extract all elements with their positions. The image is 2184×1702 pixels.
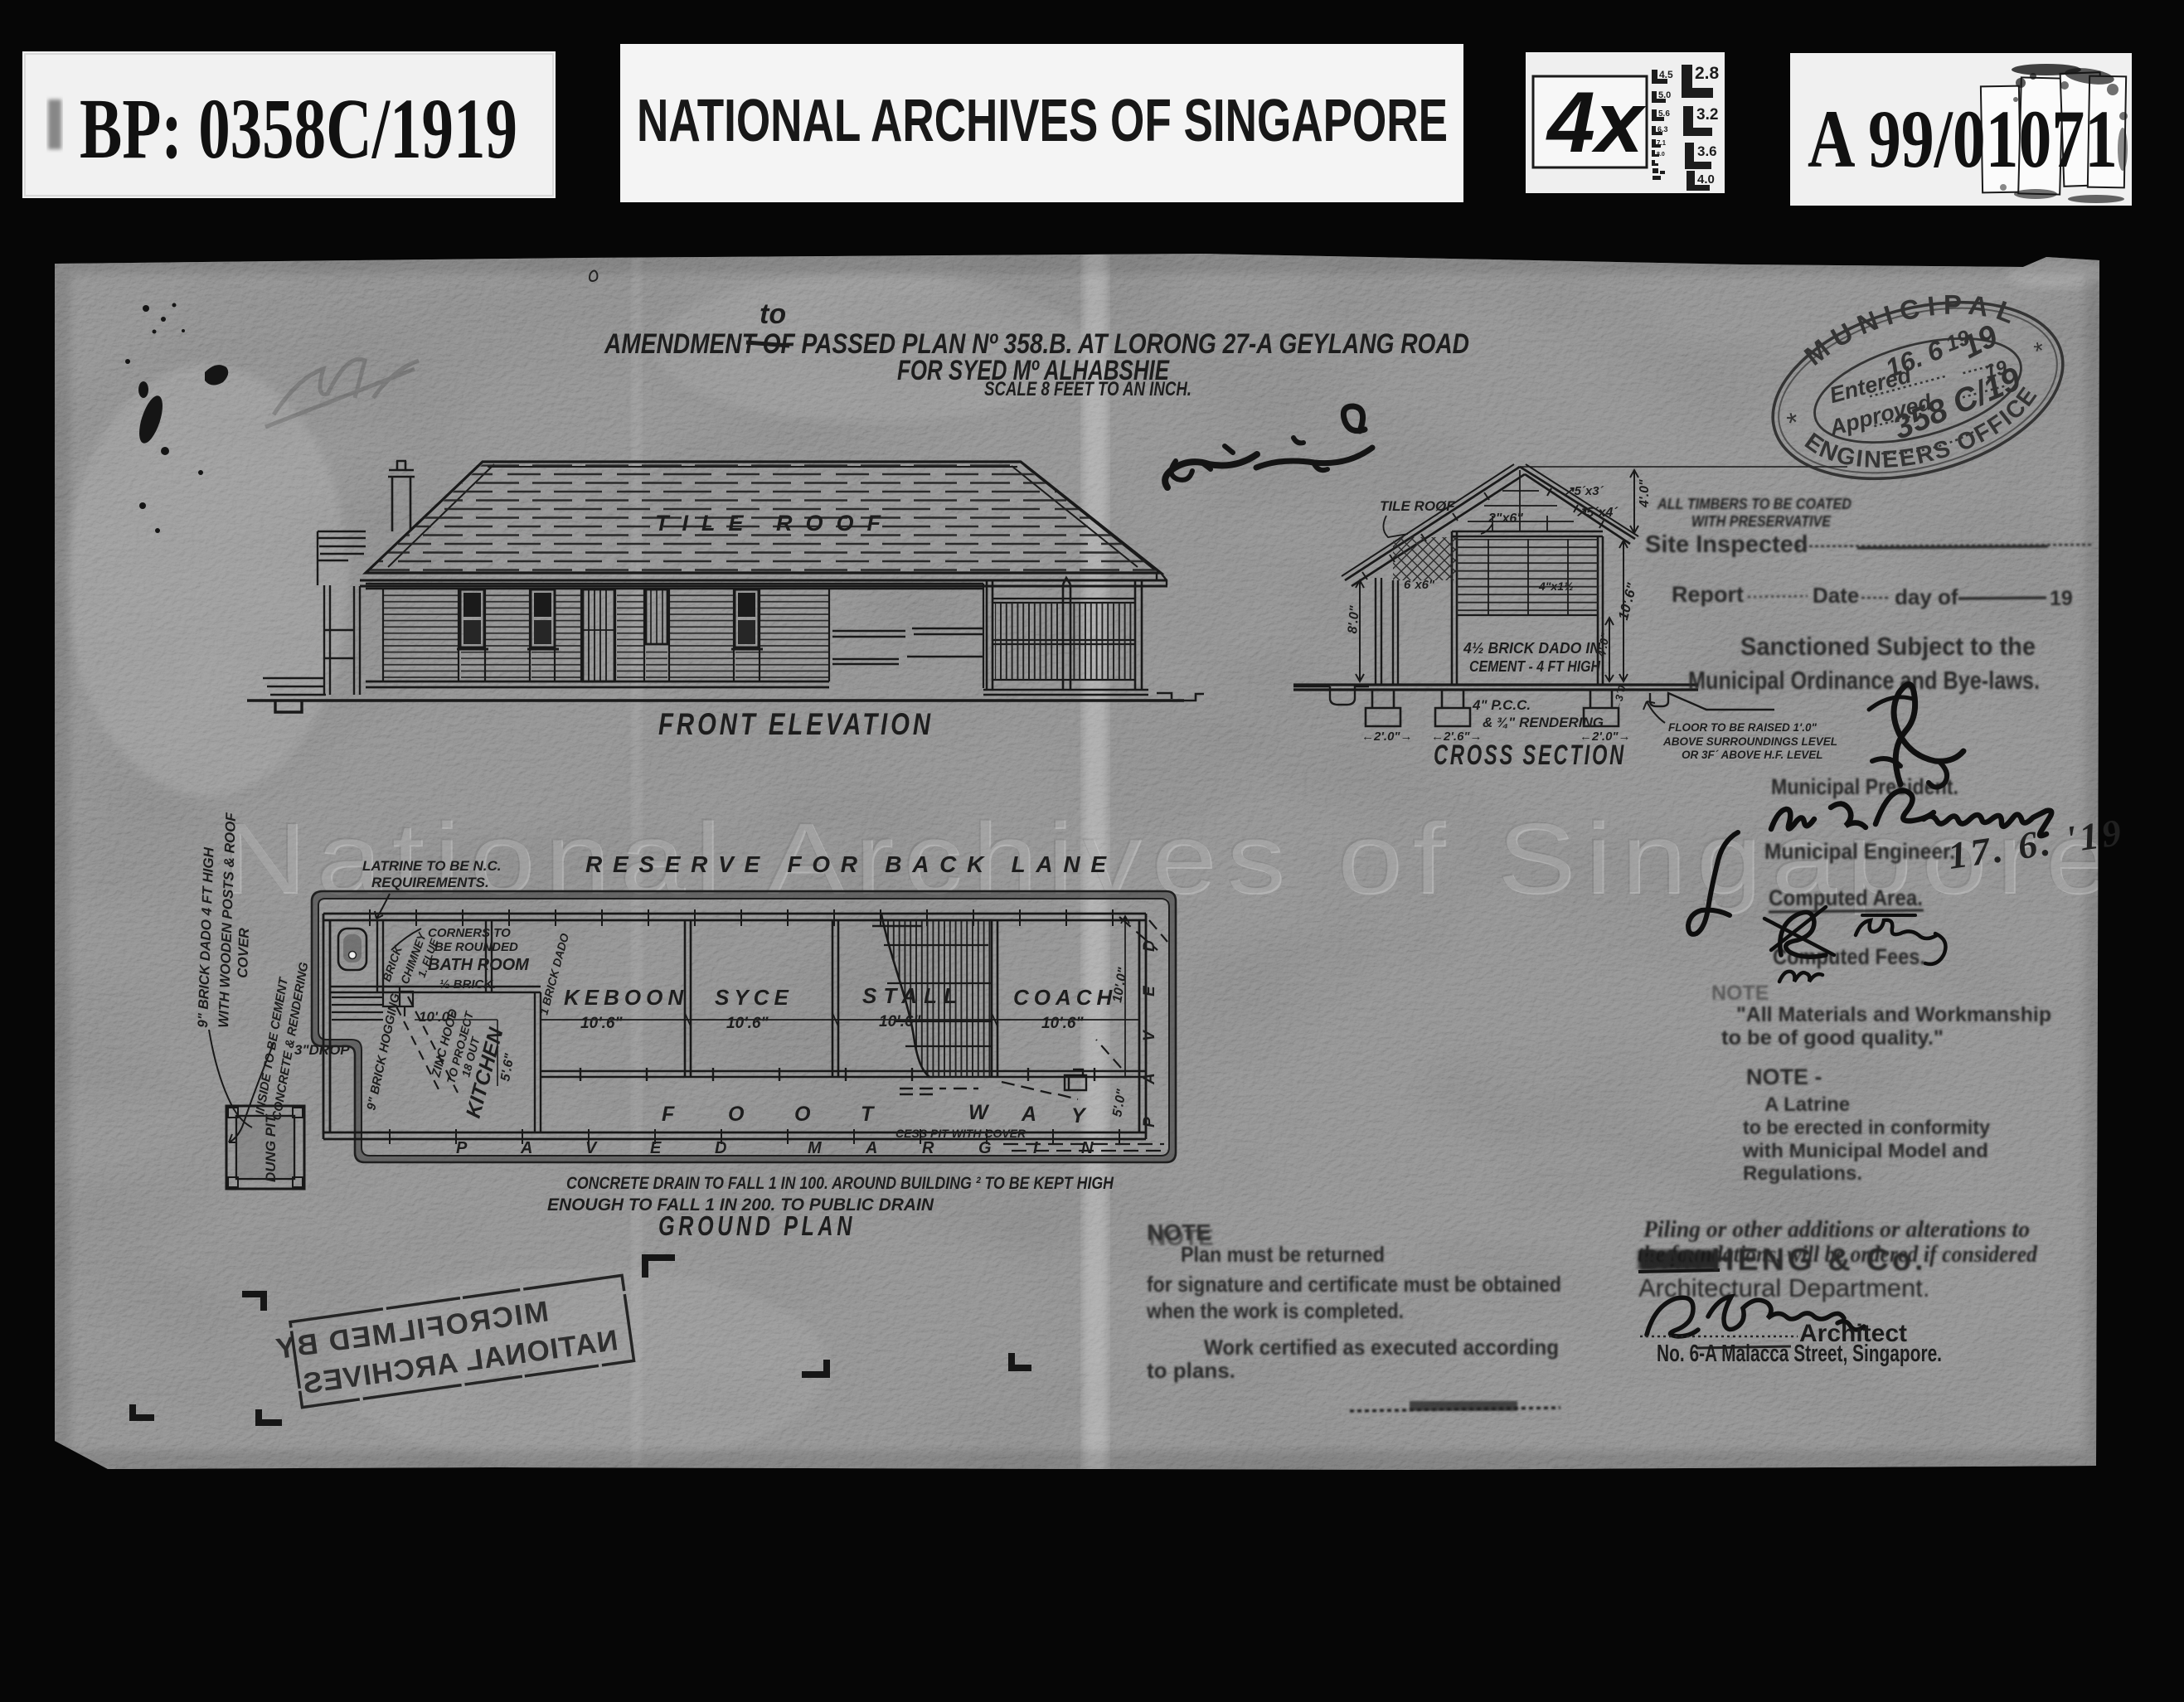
- svg-text:"All Materials and Workmanship: "All Materials and Workmanship: [1736, 1003, 2051, 1026]
- svg-text:A: A: [865, 1139, 877, 1157]
- svg-text:A: A: [520, 1139, 532, 1157]
- svg-text:NOTE -: NOTE -: [1746, 1064, 1822, 1089]
- svg-text:GROUND PLAN: GROUND PLAN: [658, 1210, 856, 1241]
- svg-text:3.6: 3.6: [1697, 143, 1717, 159]
- svg-text:Date: Date: [1813, 583, 1859, 608]
- svg-text:6.3: 6.3: [1657, 125, 1668, 133]
- svg-text:5.6: 5.6: [1658, 109, 1670, 119]
- svg-text:FRONT ELEVATION: FRONT ELEVATION: [658, 707, 934, 741]
- svg-text:D: D: [715, 1139, 726, 1157]
- svg-text:BAN: BAN: [1640, 1244, 1705, 1274]
- svg-text:3.2: 3.2: [1696, 106, 1718, 124]
- svg-text:OR 3F´ ABOVE H.F. LEVEL: OR 3F´ ABOVE H.F. LEVEL: [1682, 749, 1823, 761]
- svg-text:with Municipal Model and: with Municipal Model and: [1742, 1140, 1988, 1162]
- svg-text:4.0: 4.0: [1697, 172, 1715, 187]
- svg-text:A: A: [1141, 1073, 1158, 1085]
- svg-text:4.5: 4.5: [1659, 69, 1673, 80]
- svg-text:to: to: [760, 298, 786, 330]
- svg-text:10'.6": 10'.6": [726, 1015, 769, 1032]
- svg-text:D: D: [1141, 940, 1158, 952]
- svg-text:CROSS SECTION: CROSS SECTION: [1434, 739, 1626, 771]
- svg-text:for signature and certificate: for signature and certificate must be ob…: [1147, 1272, 1561, 1297]
- svg-text:5.0: 5.0: [1658, 90, 1671, 100]
- svg-text:O: O: [794, 1103, 811, 1126]
- svg-text:BE ROUNDED: BE ROUNDED: [434, 940, 518, 954]
- svg-text:day of: day of: [1895, 584, 1958, 609]
- svg-text:O: O: [728, 1103, 745, 1126]
- svg-text:KEBOON: KEBOON: [564, 985, 688, 1010]
- svg-text:Municipal Ordinance and Bye-la: Municipal Ordinance and Bye-laws.: [1688, 666, 2040, 695]
- svg-text:W: W: [968, 1101, 990, 1124]
- svg-text:½ BRICK.: ½ BRICK.: [439, 977, 496, 992]
- svg-text:4½ BRICK DADO IN: 4½ BRICK DADO IN: [1463, 640, 1601, 657]
- svg-text:WITH PRESERVATIVE: WITH PRESERVATIVE: [1691, 513, 1832, 530]
- svg-text:Site Inspected: Site Inspected: [1645, 531, 1808, 558]
- svg-text:←2'.0"→: ←2'.0"→: [1361, 730, 1413, 744]
- svg-text:CEMENT - 4 FT HIGH: CEMENT - 4 FT HIGH: [1469, 658, 1601, 675]
- svg-text:BP: 0358C/1919: BP: 0358C/1919: [80, 81, 517, 177]
- svg-text:N: N: [1081, 1139, 1094, 1157]
- svg-text:2.8: 2.8: [1695, 64, 1720, 83]
- svg-text:4'.0": 4'.0": [1638, 479, 1652, 508]
- svg-text:COVER: COVER: [235, 927, 252, 978]
- svg-text:Plan must be returned: Plan must be returned: [1181, 1242, 1385, 1267]
- svg-text:19: 19: [2050, 587, 2073, 610]
- svg-text:Piling or other additions or a: Piling or other additions or alterations…: [1643, 1217, 2030, 1243]
- svg-text:E: E: [650, 1139, 662, 1157]
- svg-text:REQUIREMENTS.: REQUIREMENTS.: [371, 875, 489, 890]
- svg-text:A 99/01071: A 99/01071: [1808, 93, 2118, 185]
- svg-text:10'.6": 10'.6": [580, 1015, 623, 1032]
- svg-text:A: A: [1021, 1103, 1036, 1126]
- svg-text:SCALE 8 FEET TO AN INCH.: SCALE 8 FEET TO AN INCH.: [984, 378, 1191, 400]
- svg-text:P: P: [1141, 1117, 1158, 1127]
- svg-text:V: V: [1141, 1030, 1158, 1041]
- svg-text:to be of good quality.": to be of good quality.": [1721, 1026, 1944, 1050]
- svg-text:SYCE: SYCE: [715, 985, 794, 1010]
- svg-text:4"x1½: 4"x1½: [1538, 579, 1574, 593]
- svg-text:TILE ROØF: TILE ROØF: [1380, 498, 1455, 514]
- svg-text:3"DROP: 3"DROP: [294, 1042, 350, 1058]
- svg-text:M: M: [808, 1139, 823, 1157]
- svg-text:2"x6": 2"x6": [1488, 512, 1523, 526]
- svg-text:FLOOR TO BE RAISED 1'.0": FLOOR TO BE RAISED 1'.0": [1668, 721, 1817, 734]
- svg-text:No. 6-A Malacca Street, Singap: No. 6-A Malacca Street, Singapore.: [1657, 1341, 1942, 1367]
- svg-text:8.0: 8.0: [1657, 152, 1665, 158]
- svg-text:A Latrine: A Latrine: [1764, 1093, 1850, 1116]
- svg-text:& ¾" RENDERING: & ¾" RENDERING: [1483, 715, 1604, 730]
- svg-text:CONCRETE DRAIN TO FALL 1 IN 10: CONCRETE DRAIN TO FALL 1 IN 100. AROUND …: [566, 1174, 1114, 1193]
- svg-text:to plans.: to plans.: [1147, 1358, 1235, 1383]
- svg-text:6´x6": 6´x6": [1404, 578, 1435, 592]
- svg-text:Report: Report: [1672, 582, 1744, 607]
- svg-text:when the work is completed.: when the work is completed.: [1146, 1298, 1404, 1323]
- svg-text:Y: Y: [1071, 1104, 1087, 1127]
- svg-text:4" P.C.C.: 4" P.C.C.: [1472, 697, 1531, 713]
- svg-text:RESERVE FOR BACK LANE: RESERVE FOR BACK LANE: [585, 851, 1116, 877]
- svg-text:Work certified as executed acc: Work certified as executed according: [1204, 1335, 1559, 1360]
- svg-text:STALL: STALL: [862, 983, 963, 1008]
- svg-text:Computed Area.: Computed Area.: [1769, 885, 1923, 910]
- svg-text:HENG & Co.: HENG & Co.: [1711, 1243, 1927, 1278]
- svg-text:10'.6": 10'.6": [1041, 1015, 1084, 1032]
- svg-text:R: R: [922, 1139, 934, 1157]
- svg-text:to be erected in conformity: to be erected in conformity: [1743, 1117, 1991, 1139]
- svg-text:ALL TIMBERS TO BE COATED: ALL TIMBERS TO BE COATED: [1657, 496, 1852, 512]
- svg-text:I: I: [1033, 1139, 1038, 1157]
- svg-text:Municipal Engineer.: Municipal Engineer.: [1764, 839, 1955, 864]
- svg-text:NOTE: NOTE: [1711, 982, 1769, 1005]
- svg-text:ABOVE SURROUNDINGS LEVEL: ABOVE SURROUNDINGS LEVEL: [1662, 735, 1837, 748]
- svg-text:LATRINE TO BE N.C.: LATRINE TO BE N.C.: [362, 858, 502, 874]
- svg-text:BATH ROOM: BATH ROOM: [428, 956, 530, 974]
- svg-text:F: F: [662, 1103, 675, 1126]
- svg-text:CORNERS TO: CORNERS TO: [428, 926, 511, 940]
- svg-text:↗5´x4´: ↗5´x4´: [1575, 506, 1619, 520]
- svg-text:P: P: [456, 1139, 468, 1157]
- svg-text:Regulations.: Regulations.: [1743, 1162, 1862, 1185]
- svg-text:4x: 4x: [1546, 75, 1647, 171]
- svg-text:V: V: [585, 1139, 598, 1157]
- svg-text:G: G: [978, 1139, 992, 1157]
- svg-text:Sanctioned Subject to the: Sanctioned Subject to the: [1740, 632, 2036, 661]
- svg-text:10'.6": 10'.6": [879, 1013, 921, 1030]
- svg-text:8'.0": 8'.0": [1346, 605, 1362, 634]
- svg-text:7.1: 7.1: [1657, 139, 1667, 147]
- svg-text:NATIONAL ARCHIVES OF SINGAPORE: NATIONAL ARCHIVES OF SINGAPORE: [637, 88, 1448, 154]
- svg-text:↗5´x3´: ↗5´x3´: [1564, 484, 1604, 498]
- svg-text:DUNG PIT: DUNG PIT: [263, 1113, 279, 1182]
- svg-text:E: E: [1141, 985, 1158, 996]
- svg-text:TILE ROOF: TILE ROOF: [655, 511, 892, 536]
- svg-text:COACH: COACH: [1013, 985, 1117, 1010]
- svg-text:CESS PIT WITH COVER: CESS PIT WITH COVER: [895, 1127, 1026, 1140]
